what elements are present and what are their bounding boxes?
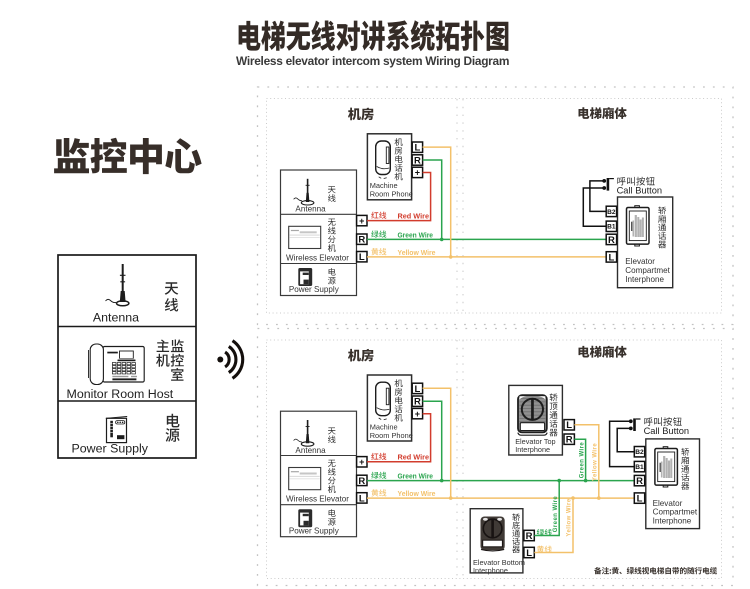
svg-text:B2: B2: [607, 209, 616, 216]
svg-text:Wireless Elevator: Wireless Elevator: [286, 495, 349, 504]
svg-text:Elevator: Elevator: [653, 499, 683, 508]
svg-text:Room Phone: Room Phone: [370, 190, 413, 199]
svg-text:Antenna: Antenna: [295, 446, 326, 455]
svg-text:L: L: [359, 493, 365, 504]
svg-text:L: L: [566, 420, 572, 431]
svg-text:+: +: [415, 168, 420, 178]
svg-text:L: L: [637, 494, 643, 505]
svg-text:Red Wire: Red Wire: [398, 211, 430, 220]
svg-text:Yellow Wire: Yellow Wire: [567, 498, 573, 536]
svg-text:Green Wire: Green Wire: [398, 230, 434, 239]
svg-text:Wireless elevator intercom sys: Wireless elevator intercom system Wiring…: [236, 54, 509, 68]
svg-text:Power Supply: Power Supply: [289, 285, 340, 294]
svg-text:Call Button: Call Button: [617, 186, 662, 196]
svg-text:Monitor Room Host: Monitor Room Host: [67, 387, 174, 401]
svg-text:R: R: [566, 435, 573, 446]
svg-text:Yellow Wire: Yellow Wire: [592, 443, 598, 481]
svg-text:B1: B1: [635, 464, 644, 471]
svg-text:B2: B2: [635, 449, 644, 456]
svg-text:+: +: [359, 216, 364, 226]
svg-text:Wireless Elevator: Wireless Elevator: [286, 253, 349, 262]
svg-text:R: R: [526, 531, 533, 542]
svg-text:Green Wire: Green Wire: [398, 472, 434, 481]
svg-text:Green Wire: Green Wire: [579, 442, 585, 479]
svg-text:Antenna: Antenna: [93, 311, 139, 325]
svg-text:Compartmet: Compartmet: [625, 266, 670, 275]
svg-text:Power Supply: Power Supply: [289, 526, 340, 535]
svg-text:+: +: [359, 457, 364, 467]
svg-text:Call Button: Call Button: [644, 426, 689, 436]
svg-text:Interphone: Interphone: [653, 516, 692, 525]
svg-text:R: R: [358, 476, 365, 487]
svg-text:Yellow Wire: Yellow Wire: [398, 489, 436, 498]
svg-text:L: L: [414, 143, 420, 154]
svg-text:R: R: [414, 397, 421, 408]
svg-text:L: L: [608, 252, 614, 263]
svg-text:R: R: [636, 476, 643, 487]
svg-text:Power Supply: Power Supply: [72, 442, 149, 456]
svg-text:R: R: [414, 155, 421, 166]
svg-text:Interphone: Interphone: [473, 566, 508, 575]
svg-text:Room Phone: Room Phone: [370, 431, 413, 440]
svg-text:L: L: [414, 384, 420, 395]
svg-text:Elevator: Elevator: [625, 257, 655, 266]
svg-text:Antenna: Antenna: [295, 205, 326, 214]
svg-text:Green Wire: Green Wire: [553, 496, 559, 533]
svg-text:Red Wire: Red Wire: [398, 453, 430, 462]
svg-text:Interphone: Interphone: [515, 445, 550, 454]
svg-text:Compartmet: Compartmet: [653, 508, 698, 517]
svg-text:L: L: [526, 548, 532, 559]
svg-text:R: R: [358, 235, 365, 246]
svg-text:Interphone: Interphone: [625, 275, 664, 284]
svg-text:L: L: [359, 252, 365, 263]
svg-text:R: R: [608, 235, 615, 246]
svg-text:Yellow Wire: Yellow Wire: [398, 248, 436, 257]
svg-text:B1: B1: [607, 224, 616, 231]
svg-text:+: +: [415, 409, 420, 419]
